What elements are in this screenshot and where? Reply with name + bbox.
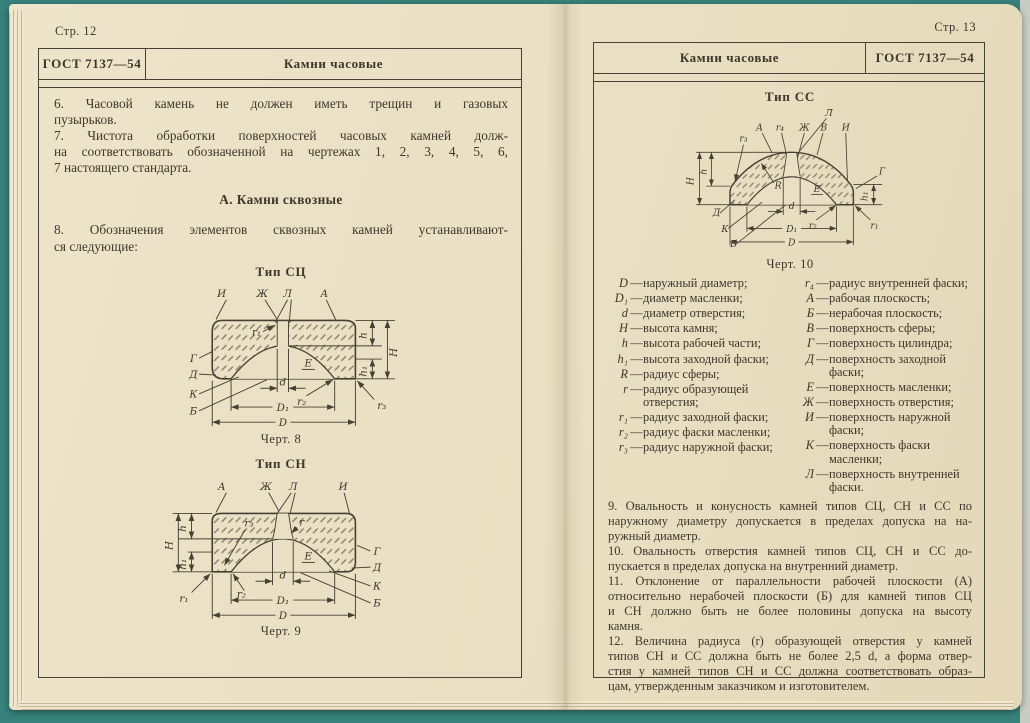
legend-symbol: К bbox=[794, 439, 816, 465]
fig-label: А bbox=[319, 288, 328, 300]
legend-dash: — bbox=[816, 337, 829, 350]
fig-label: d bbox=[789, 201, 795, 212]
fig10-caption: Черт. 10 bbox=[608, 257, 972, 272]
fig-label: H bbox=[388, 347, 400, 358]
fig-label: А bbox=[217, 481, 226, 493]
legend-text: поверхность заходной фаски; bbox=[829, 353, 972, 379]
legend-item: Б — нерабочая плоскость; bbox=[794, 307, 972, 320]
text-line: 8. Обозначения элементов сквозных камней… bbox=[54, 222, 508, 238]
legend-text: радиус наружной фаски; bbox=[643, 441, 786, 454]
fig8-title: Тип СЦ bbox=[54, 264, 508, 280]
legend-symbol: H bbox=[608, 322, 630, 335]
binding-crease bbox=[547, 4, 583, 710]
legend-item: Л — поверхность внутренней фаски. bbox=[794, 468, 972, 494]
legend-dash: — bbox=[630, 277, 643, 290]
legend-symbol: Д bbox=[794, 353, 816, 379]
legend-dash: — bbox=[816, 322, 829, 335]
fig-label: D₁ bbox=[276, 595, 289, 607]
paragraph-6: 6. Часовой камень не должен иметь трещин… bbox=[54, 96, 508, 128]
fig-label: Б bbox=[729, 239, 737, 250]
legend-symbol: Ж bbox=[794, 396, 816, 409]
legend-dash: — bbox=[630, 307, 643, 320]
fig-label: r₄ bbox=[776, 122, 784, 133]
fig-label: Ж bbox=[259, 481, 272, 493]
fig-label: Г bbox=[189, 353, 198, 365]
fig-label: Б bbox=[372, 598, 381, 610]
legend-item: Е — поверхность масленки; bbox=[794, 381, 972, 394]
legend-text: поверхность цилиндра; bbox=[829, 337, 972, 350]
legend-item: h₁ — высота заходной фаски; bbox=[608, 353, 786, 366]
legend-dash: — bbox=[816, 307, 829, 320]
left-page-content: 6. Часовой камень не должен иметь трещин… bbox=[54, 96, 508, 641]
paragraph-12: 12. Величина радиуса (r) образующей отве… bbox=[608, 634, 972, 694]
legend-symbol: Б bbox=[794, 307, 816, 320]
legend-text: диаметр масленки; bbox=[643, 292, 786, 305]
fig10-title: Тип СС bbox=[608, 89, 972, 105]
text-line: на соответствовать обозначенной на черте… bbox=[54, 144, 508, 160]
legend-text: поверхность наружной фаски; bbox=[829, 411, 972, 437]
fig-label: К bbox=[372, 581, 382, 593]
legend-item: H — высота камня; bbox=[608, 322, 786, 335]
fig-label: h₁ bbox=[358, 366, 370, 377]
legend-item: Ж — поверхность отверстия; bbox=[794, 396, 972, 409]
legend-text: радиус внутренней фаски; bbox=[829, 277, 972, 290]
left-page-frame: ГОСТ 7137—54 Камни часовые 6. Часовой ка… bbox=[38, 48, 522, 678]
paragraph-8: 8. Обозначения элементов сквозных камней… bbox=[54, 222, 508, 254]
legend-dash: — bbox=[816, 353, 829, 379]
legend-column-right: r₄ — радиус внутренней фаски; А — рабоча… bbox=[794, 277, 972, 496]
fig-label: r₂ bbox=[809, 220, 817, 231]
fig-label: H bbox=[686, 176, 697, 186]
fig-label: К bbox=[188, 389, 198, 401]
legend-symbol: r₃ bbox=[608, 441, 630, 454]
text-line: 7. Чистота обработки поверхностей часовы… bbox=[54, 128, 508, 144]
fig-label: Г bbox=[878, 166, 886, 177]
legend-dash: — bbox=[816, 468, 829, 494]
right-page-frame: Камни часовые ГОСТ 7137—54 Тип СС bbox=[593, 42, 985, 678]
fig-label: r₁ bbox=[870, 220, 878, 231]
fig-label: d bbox=[280, 377, 287, 389]
legend-text: поверхность отверстия; bbox=[829, 396, 972, 409]
fig8-caption: Черт. 8 bbox=[54, 432, 508, 447]
fig-label: Г bbox=[373, 546, 382, 558]
text-line: 9. Овальность и конусность камней типов … bbox=[608, 499, 972, 514]
text-line: стия у камней типов СН и СС должна соотв… bbox=[608, 664, 972, 679]
legend-symbol: h bbox=[608, 337, 630, 350]
fig-label: r₂ bbox=[237, 588, 246, 600]
legend-dash: — bbox=[630, 337, 643, 350]
page-number-left: Стр. 12 bbox=[55, 24, 97, 39]
fig-label: Л bbox=[824, 108, 833, 119]
fig-label: В bbox=[819, 122, 827, 133]
text-line: ся следующие: bbox=[54, 239, 508, 255]
legend-text: нерабочая плоскость; bbox=[829, 307, 972, 320]
fig-label: r₂ bbox=[297, 397, 306, 409]
fig-label: D₁ bbox=[276, 402, 289, 414]
fig-label: D bbox=[278, 417, 288, 429]
fig-label: Е bbox=[304, 358, 313, 370]
paragraph-11: 11. Отклонение от параллельности рабочей… bbox=[608, 574, 972, 634]
page-edge-stack-left bbox=[9, 10, 24, 706]
legend-symbol: А bbox=[794, 292, 816, 305]
legend-dash: — bbox=[816, 411, 829, 437]
text-line: пускается в пределах допуска на внутренн… bbox=[608, 559, 972, 574]
legend-symbol: r bbox=[608, 383, 630, 409]
fig-label: Ж bbox=[255, 288, 268, 300]
fig-label: R bbox=[774, 180, 782, 191]
page-edge-stack-bottom bbox=[19, 701, 1014, 710]
fig-label: h bbox=[358, 333, 370, 340]
legend-text: поверхность масленки; bbox=[829, 381, 972, 394]
legend-text: радиус образующей отверстия; bbox=[643, 383, 786, 409]
fig-label: h₁ bbox=[177, 559, 189, 570]
legend-item: Г — поверхность цилиндра; bbox=[794, 337, 972, 350]
text-line: камня. bbox=[608, 619, 972, 634]
legend-text: высота камня; bbox=[643, 322, 786, 335]
fig9-linework bbox=[173, 493, 371, 619]
legend-item: В — поверхность сферы; bbox=[794, 322, 972, 335]
legend-item: h — высота рабочей части; bbox=[608, 337, 786, 350]
fig-label: Ж bbox=[798, 122, 810, 133]
legend-text: рабочая плоскость; bbox=[829, 292, 972, 305]
left-page-header: ГОСТ 7137—54 Камни часовые bbox=[39, 49, 521, 80]
fig-label: Л bbox=[282, 288, 292, 300]
legend-item: D — наружный диаметр; bbox=[608, 277, 786, 290]
legend-item: А — рабочая плоскость; bbox=[794, 292, 972, 305]
legend-symbol: d bbox=[608, 307, 630, 320]
section-heading: А. Камни сквозные bbox=[54, 192, 508, 208]
legend-dash: — bbox=[630, 426, 643, 439]
fig8-drawing: И Ж Л А r₁ Е Г Д К Б h H h₁ r₃ d r₂ D₁ bbox=[135, 279, 427, 432]
fig-label: D₁ bbox=[785, 223, 797, 234]
text-line: пузырьков. bbox=[54, 112, 508, 128]
text-line: 7 настоящего стандарта. bbox=[54, 160, 508, 176]
right-page-content: Тип СС bbox=[608, 87, 972, 694]
legend-symbol: Е bbox=[794, 381, 816, 394]
fig-label: r₁ bbox=[179, 593, 188, 605]
running-title: Камни часовые bbox=[594, 43, 865, 73]
fig-label: Б bbox=[189, 406, 198, 418]
legend-item: R — радиус сферы; bbox=[608, 368, 786, 381]
legend-dash: — bbox=[816, 277, 829, 290]
legend-dash: — bbox=[630, 411, 643, 424]
legend-dash: — bbox=[816, 439, 829, 465]
legend-text: радиус заходной фаски; bbox=[643, 411, 786, 424]
header-underrule bbox=[593, 81, 985, 82]
legend-text: поверхность фаски масленки; bbox=[829, 439, 972, 465]
fig-label: r₃ bbox=[244, 518, 253, 530]
fig-label: Д bbox=[712, 207, 721, 218]
fig-label: Л bbox=[288, 481, 298, 493]
text-line: 11. Отклонение от параллельности рабочей… bbox=[608, 574, 972, 589]
legend-dash: — bbox=[630, 292, 643, 305]
fig-label: h bbox=[698, 168, 709, 174]
legend-text: радиус сферы; bbox=[643, 368, 786, 381]
legend-symbol: r₁ bbox=[608, 411, 630, 424]
fig-label: И bbox=[216, 288, 227, 300]
legend-text: поверхность внутренней фаски. bbox=[829, 468, 972, 494]
legend-item: r₄ — радиус внутренней фаски; bbox=[794, 277, 972, 290]
page-number-right: Стр. 13 bbox=[934, 20, 976, 35]
fig-label: H bbox=[164, 540, 176, 551]
fig-label: r₃ bbox=[377, 400, 386, 412]
legend-text: высота заходной фаски; bbox=[643, 353, 786, 366]
legend-item: К — поверхность фаски масленки; bbox=[794, 439, 972, 465]
fig-label: Д bbox=[188, 369, 198, 381]
fig9-drawing: А Ж Л И r₃ r Е H h h₁ r₁ Г Д К Б r₂ d bbox=[135, 472, 427, 625]
legend-text: радиус фаски масленки; bbox=[643, 426, 786, 439]
fig-label: r₃ bbox=[739, 133, 747, 144]
legend-item: r — радиус образующей отверстия; bbox=[608, 383, 786, 409]
paragraph-10: 10. Овальность отверстия камней типов СЦ… bbox=[608, 544, 972, 574]
legend-item: r₁ — радиус заходной фаски; bbox=[608, 411, 786, 424]
legend-dash: — bbox=[630, 383, 643, 409]
legend-symbol: h₁ bbox=[608, 353, 630, 366]
legend-dash: — bbox=[816, 396, 829, 409]
legend-dash: — bbox=[816, 292, 829, 305]
legend-dash: — bbox=[630, 322, 643, 335]
right-page-header: Камни часовые ГОСТ 7137—54 bbox=[594, 43, 984, 74]
gost-number-box: ГОСТ 7137—54 bbox=[39, 49, 146, 79]
book-spread: Стр. 12 Стр. 13 ГОСТ 7137—54 Камни часов… bbox=[9, 4, 1022, 710]
legend-text: диаметр отверстия; bbox=[643, 307, 786, 320]
gost-number-box: ГОСТ 7137—54 bbox=[865, 43, 984, 73]
header-underrule bbox=[38, 87, 522, 88]
text-line: цам, утвержденным заказчиком и изготовит… bbox=[608, 679, 972, 694]
fig9-caption: Черт. 9 bbox=[54, 624, 508, 639]
fig-label: Е bbox=[304, 550, 313, 562]
legend-dash: — bbox=[630, 353, 643, 366]
text-line: 10. Овальность отверстия камней типов СЦ… bbox=[608, 544, 972, 559]
symbol-legend: D — наружный диаметр; D₁ — диаметр масле… bbox=[608, 277, 972, 496]
fig-label: Е bbox=[813, 184, 821, 195]
fig-label: h₁ bbox=[860, 191, 871, 201]
legend-symbol: И bbox=[794, 411, 816, 437]
running-title: Камни часовые bbox=[146, 49, 521, 79]
paragraph-9: 9. Овальность и конусность камней типов … bbox=[608, 499, 972, 544]
fig-label: А bbox=[755, 122, 763, 133]
legend-symbol: r₄ bbox=[794, 277, 816, 290]
legend-text: высота рабочей части; bbox=[643, 337, 786, 350]
fig-label: Д bbox=[372, 562, 382, 574]
fig-label: D bbox=[787, 237, 796, 248]
legend-symbol: D bbox=[608, 277, 630, 290]
legend-symbol: D₁ bbox=[608, 292, 630, 305]
text-line: ружный диаметр. bbox=[608, 529, 972, 544]
fig-label: D bbox=[278, 610, 288, 622]
fig-label: d bbox=[280, 569, 287, 581]
legend-item: r₃ — радиус наружной фаски; bbox=[608, 441, 786, 454]
text-line: и СН должно быть не более половины допус… bbox=[608, 604, 972, 619]
fig-label: r₁ bbox=[252, 327, 261, 339]
text-line: 12. Величина радиуса (r) образующей отве… bbox=[608, 634, 972, 649]
text-line: типов СН и СС должна быть не более 2,5 d… bbox=[608, 649, 972, 664]
legend-text: наружный диаметр; bbox=[643, 277, 786, 290]
legend-dash: — bbox=[630, 368, 643, 381]
fig-label: И bbox=[841, 122, 851, 133]
text-line: относительно нерабочей плоскости (Б) для… bbox=[608, 589, 972, 604]
fig-label: h bbox=[177, 525, 189, 532]
fig10-drawing: Л А r₄ Ж В И r₃ R Е H h Г h₁ r₁ Д К Б bbox=[659, 105, 921, 257]
legend-column-left: D — наружный диаметр; D₁ — диаметр масле… bbox=[608, 277, 786, 496]
legend-dash: — bbox=[630, 441, 643, 454]
legend-symbol: Г bbox=[794, 337, 816, 350]
legend-item: И — поверхность наружной фаски; bbox=[794, 411, 972, 437]
fig9-title: Тип СН bbox=[54, 456, 508, 472]
legend-item: d — диаметр отверстия; bbox=[608, 307, 786, 320]
legend-item: Д — поверхность заходной фаски; bbox=[794, 353, 972, 379]
paragraph-7: 7. Чистота обработки поверхностей часовы… bbox=[54, 128, 508, 176]
legend-symbol: R bbox=[608, 368, 630, 381]
fig-label: И bbox=[338, 481, 349, 493]
text-line: наружному диаметру допускается в предела… bbox=[608, 514, 972, 529]
legend-text: поверхность сферы; bbox=[829, 322, 972, 335]
legend-symbol: Л bbox=[794, 468, 816, 494]
legend-dash: — bbox=[816, 381, 829, 394]
legend-item: D₁ — диаметр масленки; bbox=[608, 292, 786, 305]
legend-item: r₂ — радиус фаски масленки; bbox=[608, 426, 786, 439]
legend-symbol: В bbox=[794, 322, 816, 335]
text-line: 6. Часовой камень не должен иметь трещин… bbox=[54, 96, 508, 112]
fig-label: К bbox=[720, 223, 729, 234]
legend-symbol: r₂ bbox=[608, 426, 630, 439]
